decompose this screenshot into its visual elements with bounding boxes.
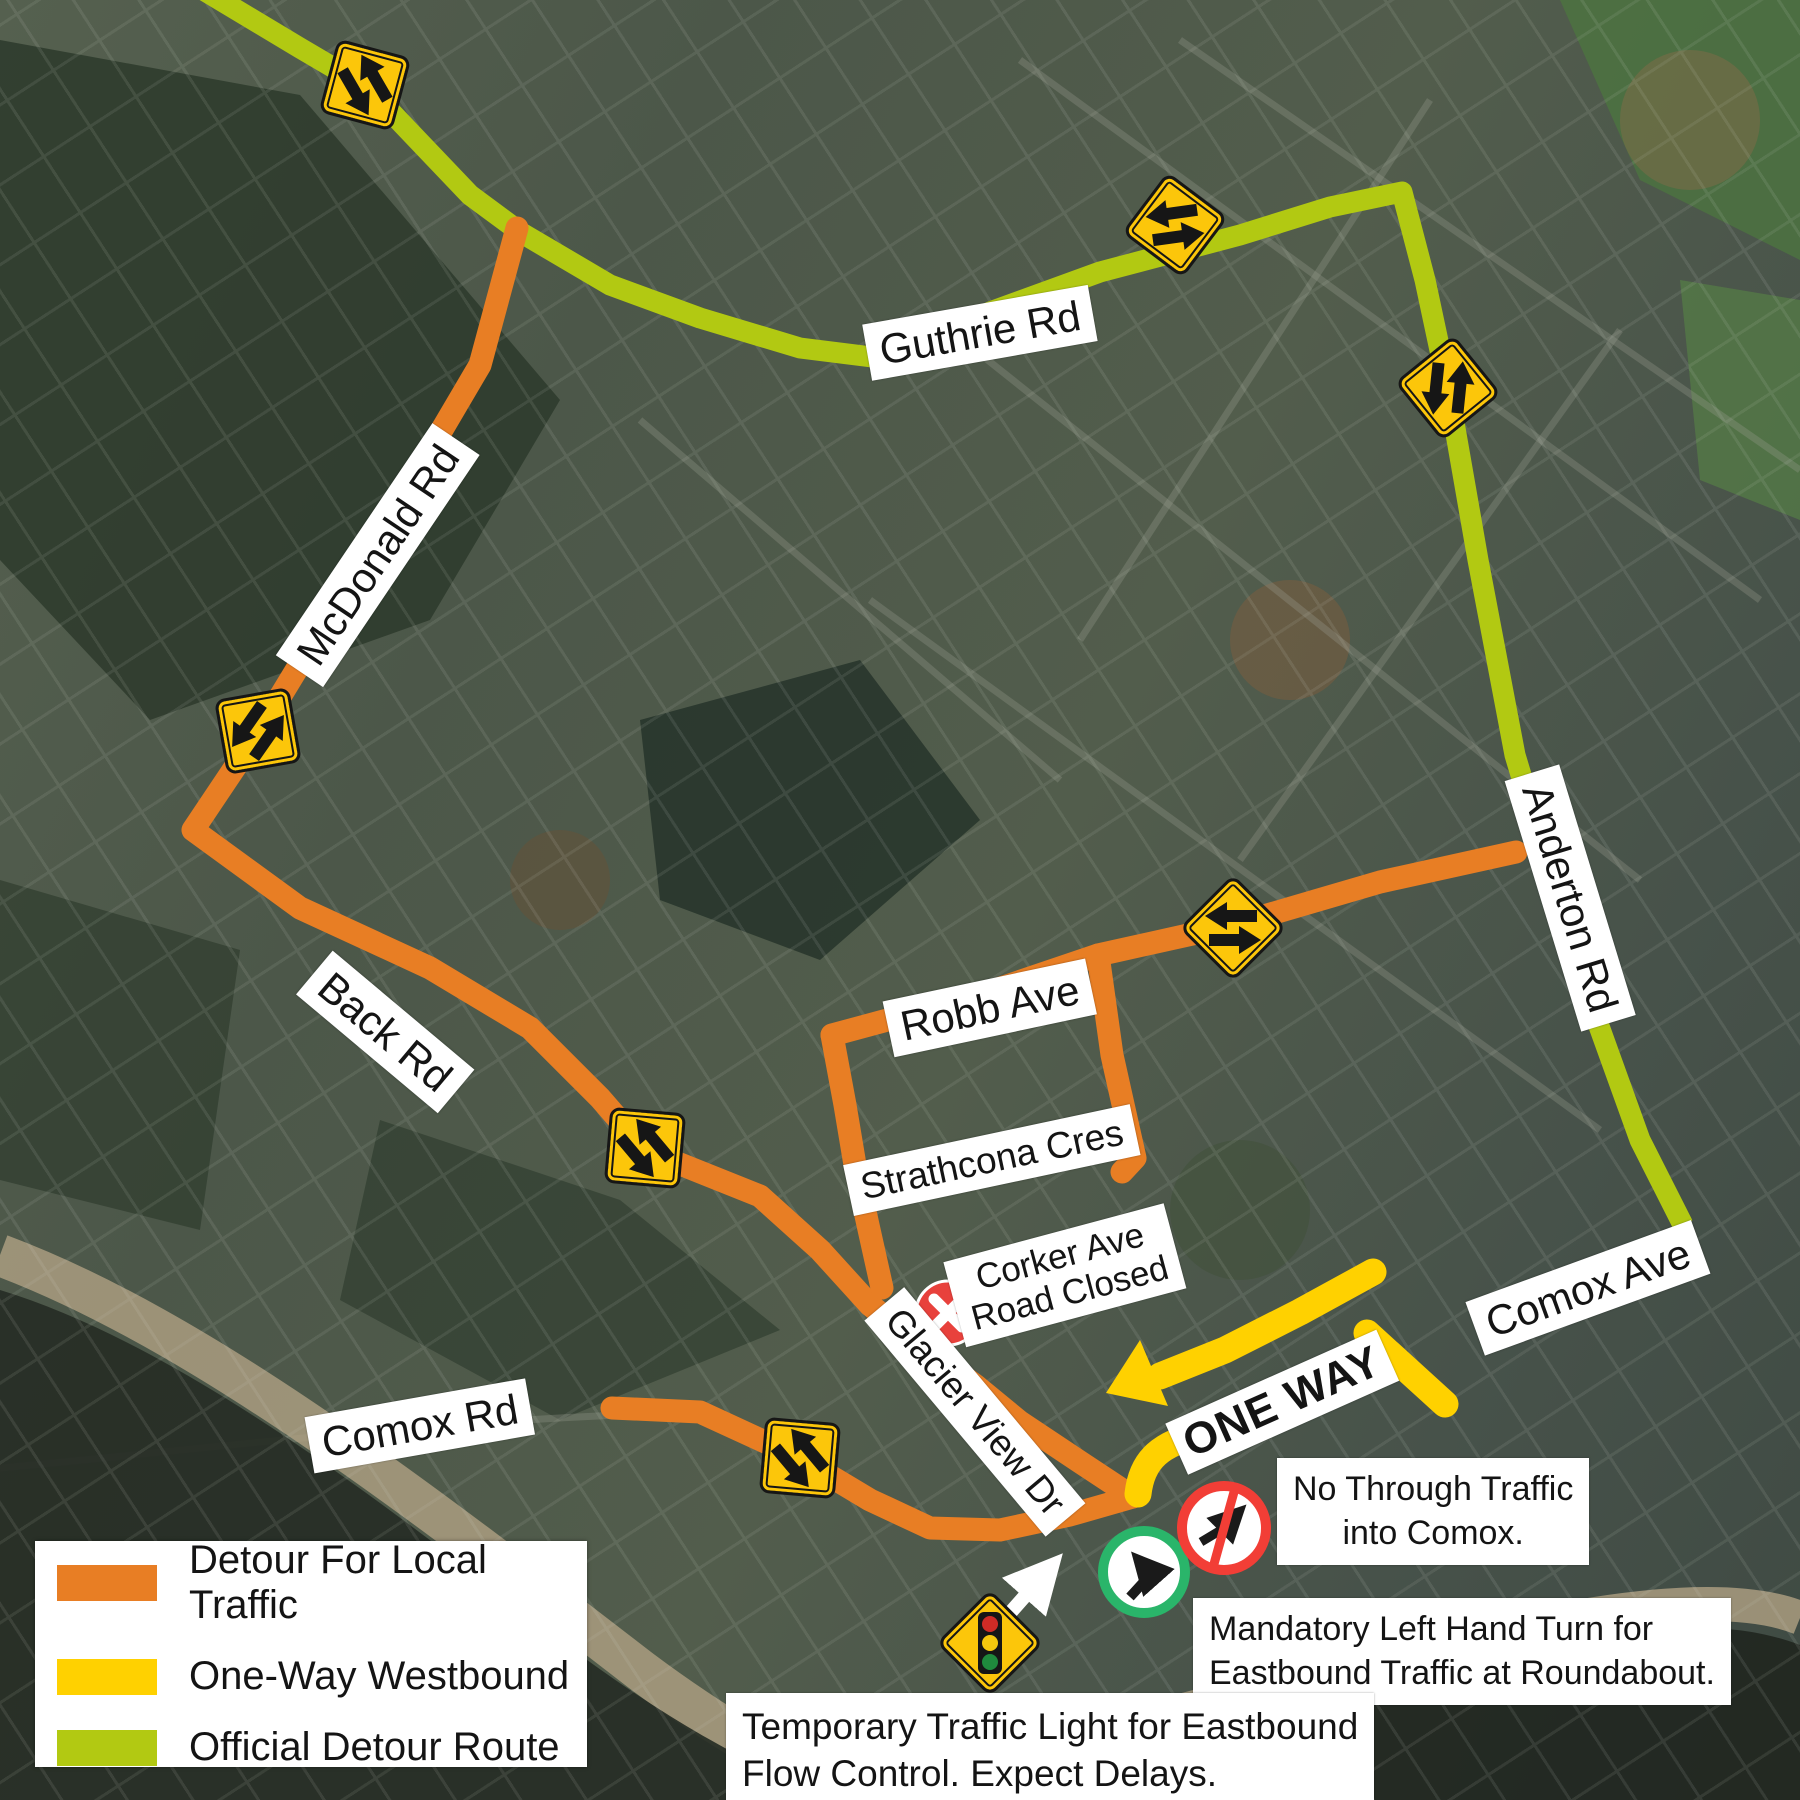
temporary-light-note-line1: Temporary Traffic Light for Eastbound (742, 1703, 1358, 1750)
two-way-arrows-icon (1404, 344, 1492, 432)
legend-swatch-green (57, 1730, 157, 1766)
mandatory-left-note-line2: Eastbound Traffic at Roundabout. (1209, 1652, 1715, 1696)
detour-map: Guthrie Rd McDonald Rd Anderton Rd Back … (0, 0, 1800, 1800)
legend-swatch-orange (57, 1565, 157, 1601)
two-way-arrows-icon (1130, 180, 1220, 270)
legend-item-local-detour: Detour For Local Traffic (57, 1538, 587, 1628)
legend-swatch-yellow (57, 1659, 157, 1695)
legend-label: Detour For Local Traffic (189, 1538, 587, 1628)
two-way-arrows-icon (202, 675, 313, 786)
temporary-light-note: Temporary Traffic Light for Eastbound Fl… (726, 1693, 1374, 1800)
two-way-arrows-icon (589, 1092, 702, 1205)
legend-label: One-Way Westbound (189, 1654, 569, 1699)
no-through-note: No Through Traffic into Comox. (1277, 1458, 1589, 1565)
two-way-traffic-sign (1386, 326, 1509, 449)
no-right-turn-sign (1175, 1479, 1273, 1577)
temporary-light-note-line2: Flow Control. Expect Delays. (742, 1750, 1358, 1797)
no-through-note-line1: No Through Traffic (1293, 1468, 1573, 1512)
traffic-light-sign (934, 1587, 1046, 1699)
mandatory-left-note: Mandatory Left Hand Turn for Eastbound T… (1193, 1598, 1731, 1705)
two-way-traffic-sign (1112, 162, 1238, 288)
legend-item-one-way: One-Way Westbound (57, 1654, 587, 1699)
legend-label: Official Detour Route (189, 1725, 560, 1770)
two-way-arrows-icon (744, 1402, 857, 1515)
local-detour-lines (193, 228, 1516, 1530)
two-way-arrows-icon (310, 30, 419, 139)
mandatory-left-note-line1: Mandatory Left Hand Turn for (1209, 1608, 1715, 1652)
legend-item-official-detour: Official Detour Route (57, 1725, 587, 1770)
no-through-note-line2: into Comox. (1293, 1512, 1573, 1556)
legend: Detour For Local Traffic One-Way Westbou… (35, 1541, 587, 1767)
two-way-arrows-icon (1193, 888, 1273, 968)
two-way-traffic-sign (1177, 872, 1289, 984)
traffic-light-icon (950, 1603, 1030, 1683)
